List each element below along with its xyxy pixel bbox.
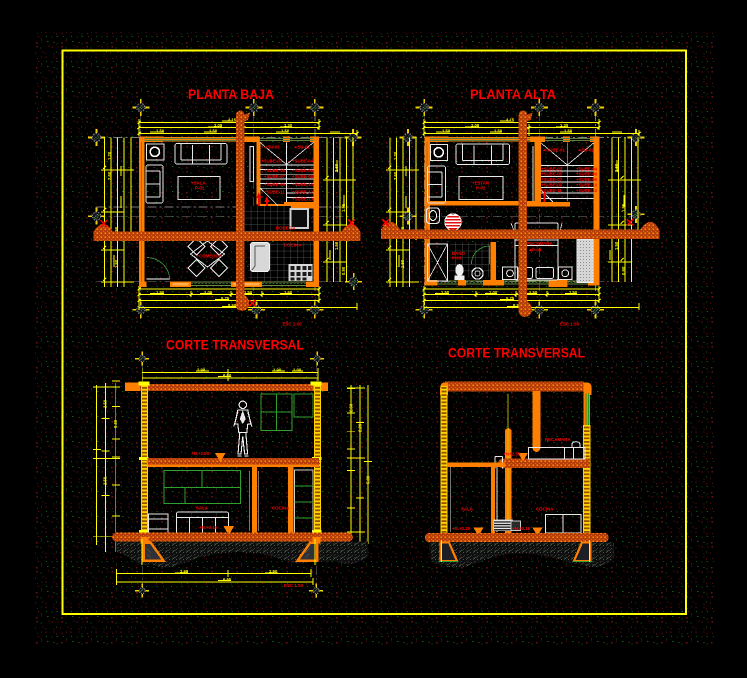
svg-text:2.08: 2.08 xyxy=(214,123,223,128)
svg-text:+SUBE-06: +SUBE-06 xyxy=(576,172,598,177)
svg-text:COCINA: COCINA xyxy=(272,506,290,511)
svg-text:1.95: 1.95 xyxy=(621,203,626,212)
svg-text:5.75: 5.75 xyxy=(221,296,230,301)
svg-text:5.30: 5.30 xyxy=(366,475,371,484)
svg-text:1.00: 1.00 xyxy=(489,290,498,295)
svg-text:COCINA: COCINA xyxy=(284,243,302,248)
svg-text:+SUBE-10: +SUBE-10 xyxy=(292,182,314,187)
svg-text:+N.+2.50: +N.+2.50 xyxy=(191,451,210,456)
svg-text:1.50: 1.50 xyxy=(569,290,578,295)
svg-text:1.50: 1.50 xyxy=(564,129,573,134)
svg-text:2.60: 2.60 xyxy=(107,171,112,180)
svg-text:4.15: 4.15 xyxy=(506,118,515,123)
svg-text:+SUBE-03: +SUBE-03 xyxy=(541,166,563,171)
svg-text:2.60: 2.60 xyxy=(614,163,619,172)
svg-text:ESC 1:50: ESC 1:50 xyxy=(560,322,580,327)
svg-text:+SUBE-08: +SUBE-08 xyxy=(576,177,598,182)
svg-text:2.98: 2.98 xyxy=(180,569,189,574)
svg-text:6.65: 6.65 xyxy=(223,577,232,582)
svg-text:1.50: 1.50 xyxy=(156,290,165,295)
svg-text:ESC 1:50: ESC 1:50 xyxy=(283,322,303,327)
svg-text:◄SU-02: ◄SU-02 xyxy=(577,148,594,153)
svg-text:◄SU-02: ◄SU-02 xyxy=(293,145,310,150)
svg-text:1.50: 1.50 xyxy=(400,259,405,268)
svg-text:+SUBE-03: +SUBE-03 xyxy=(261,159,283,164)
svg-text:1.30: 1.30 xyxy=(284,123,293,128)
svg-text:+SUBE-08: +SUBE-08 xyxy=(292,174,314,179)
svg-text:BODEGA: BODEGA xyxy=(276,226,296,231)
svg-text:+N.+0.15: +N.+0.15 xyxy=(199,525,218,530)
svg-text:8.50: 8.50 xyxy=(228,303,237,308)
svg-text:RECAMARA: RECAMARA xyxy=(527,241,553,246)
svg-text:PLANTA ALTA: PLANTA ALTA xyxy=(470,87,556,102)
svg-text:RECAMARA: RECAMARA xyxy=(545,437,571,442)
svg-text:+SUBE-06: +SUBE-06 xyxy=(292,168,314,173)
svg-text:+SUBE-09: +SUBE-09 xyxy=(541,183,563,188)
svg-text:1.50: 1.50 xyxy=(281,129,290,134)
svg-text:◄SU-01: ◄SU-01 xyxy=(263,145,280,150)
svg-text:1.20: 1.20 xyxy=(107,151,112,160)
svg-text:2.90: 2.90 xyxy=(269,569,278,574)
svg-text:1.50: 1.50 xyxy=(494,129,503,134)
svg-text:+SUBE-04: +SUBE-04 xyxy=(576,166,598,171)
svg-text:1.20: 1.20 xyxy=(393,151,398,160)
svg-text:6.00: 6.00 xyxy=(223,373,232,378)
svg-text:+SUBE-07: +SUBE-07 xyxy=(264,174,286,179)
svg-text:1.50: 1.50 xyxy=(244,290,253,295)
svg-text:1.50: 1.50 xyxy=(156,129,165,134)
svg-text:◄SUBE-01: ◄SUBE-01 xyxy=(542,148,565,153)
svg-text:1.00: 1.00 xyxy=(204,290,213,295)
svg-text:1.50: 1.50 xyxy=(209,129,218,134)
svg-text:4.15: 4.15 xyxy=(228,118,237,123)
svg-text:0.90: 0.90 xyxy=(621,266,626,275)
svg-text:+N.+0.15: +N.+0.15 xyxy=(512,526,531,531)
svg-text:+SUBE-05: +SUBE-05 xyxy=(541,172,563,177)
svg-text:SALA: SALA xyxy=(196,506,209,511)
svg-text:+SUBE-05: +SUBE-05 xyxy=(264,168,286,173)
svg-text:+SUBE-10: +SUBE-10 xyxy=(576,183,598,188)
svg-text:2.60: 2.60 xyxy=(393,171,398,180)
svg-text:+N.+0.15: +N.+0.15 xyxy=(452,526,471,531)
svg-text:2.20: 2.20 xyxy=(358,423,363,432)
svg-text:P-02: P-02 xyxy=(476,185,486,190)
svg-text:+COMEDOR: +COMEDOR xyxy=(197,253,223,258)
svg-text:+N+2.50: +N+2.50 xyxy=(504,452,521,457)
svg-text:2.50: 2.50 xyxy=(103,476,108,485)
svg-text:1.90: 1.90 xyxy=(273,368,282,373)
svg-text:1.50: 1.50 xyxy=(529,290,538,295)
svg-text:+SUBE-07: +SUBE-07 xyxy=(541,177,563,182)
svg-text:+SUBE-12: +SUBE-12 xyxy=(576,188,598,193)
svg-text:1.00: 1.00 xyxy=(293,368,302,373)
svg-text:COCINA: COCINA xyxy=(536,507,554,512)
svg-text:+SUBE-11: +SUBE-11 xyxy=(264,190,285,195)
svg-text:2.98: 2.98 xyxy=(197,368,206,373)
svg-text:P-03: P-03 xyxy=(452,256,462,261)
svg-text:5.75: 5.75 xyxy=(506,296,515,301)
svg-text:1.95: 1.95 xyxy=(341,203,346,212)
svg-text:+SUBE-12: +SUBE-12 xyxy=(292,190,314,195)
svg-text:1.50: 1.50 xyxy=(334,241,339,250)
svg-text:1.50: 1.50 xyxy=(114,259,119,268)
svg-text:2.60: 2.60 xyxy=(334,163,339,172)
svg-text:+SUBE-09: +SUBE-09 xyxy=(264,182,286,187)
svg-text:SALA: SALA xyxy=(461,507,474,512)
svg-text:2.08: 2.08 xyxy=(471,123,480,128)
svg-text:CORTE TRANSVERSAL: CORTE TRANSVERSAL xyxy=(448,346,585,361)
svg-text:P-01: P-01 xyxy=(195,185,205,190)
svg-text:2.50: 2.50 xyxy=(103,399,108,408)
svg-text:1.50: 1.50 xyxy=(284,290,293,295)
svg-text:1.50: 1.50 xyxy=(614,241,619,250)
svg-text:+SUBE-04: +SUBE-04 xyxy=(292,159,314,164)
svg-text:ESC 1:50: ESC 1:50 xyxy=(284,583,304,588)
svg-text:0.90: 0.90 xyxy=(341,266,346,275)
svg-text:0.30: 0.30 xyxy=(113,419,118,428)
svg-text:◄P-04: ◄P-04 xyxy=(528,248,542,253)
svg-text:PLANTA BAJA: PLANTA BAJA xyxy=(188,87,274,102)
svg-text:1.30: 1.30 xyxy=(560,123,569,128)
svg-text:CORTE TRANSVERSAL: CORTE TRANSVERSAL xyxy=(166,338,304,353)
svg-text:1.50: 1.50 xyxy=(442,129,451,134)
svg-text:+SUBE-13: +SUBE-13 xyxy=(292,197,314,202)
svg-text:2.50: 2.50 xyxy=(349,403,354,412)
svg-text:1.50: 1.50 xyxy=(441,290,450,295)
